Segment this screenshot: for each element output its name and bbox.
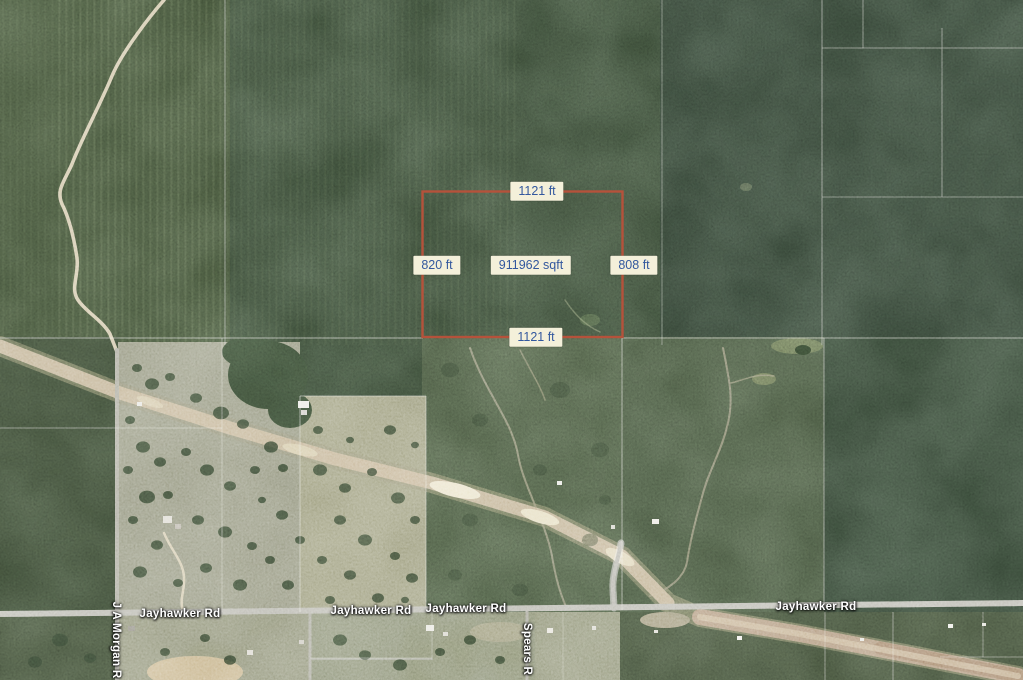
road-label-jayhawker-4: Jayhawker Rd bbox=[776, 601, 857, 613]
parcel-bottom-length-label: 1121 ft bbox=[509, 328, 562, 347]
parcel-top-length-label: 1121 ft bbox=[510, 182, 563, 201]
road-label-ja-morgan: J A Morgan R bbox=[110, 602, 122, 679]
road-label-jayhawker-1: Jayhawker Rd bbox=[140, 608, 221, 620]
road-label-spears: Spears R bbox=[521, 623, 533, 675]
satellite-map-viewport[interactable]: 1121 ft 820 ft 911962 sqft 808 ft 1121 f… bbox=[0, 0, 1023, 680]
parcel-area-label: 911962 sqft bbox=[491, 256, 571, 275]
road-label-jayhawker-3: Jayhawker Rd bbox=[426, 603, 507, 615]
parcel-right-length-label: 808 ft bbox=[610, 256, 657, 275]
road-label-jayhawker-2: Jayhawker Rd bbox=[331, 605, 412, 617]
parcel-left-length-label: 820 ft bbox=[413, 256, 460, 275]
